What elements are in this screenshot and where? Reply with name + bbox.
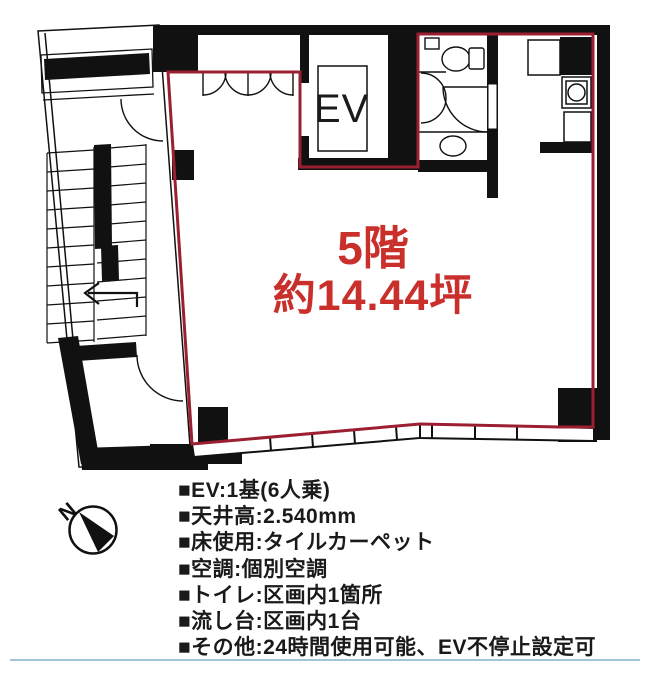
tsubo-label: 約14.44坪 xyxy=(273,272,474,320)
toilet-tank xyxy=(469,48,484,69)
toilet-room xyxy=(418,38,497,156)
entrance-doors xyxy=(203,72,293,96)
spec-item-other: ■その他:24時間使用可能、EV不停止設定可 xyxy=(178,635,618,661)
stairs-up-arrow xyxy=(85,283,137,307)
spec-item-floor: ■床使用:タイルカーペット xyxy=(178,530,618,556)
toilet-door-jamb xyxy=(488,84,497,129)
entrance-alcove xyxy=(198,35,300,68)
spec-item-sink: ■流し台:区画内1台 xyxy=(178,609,618,635)
spec-item-ceiling: ■天井高:2.540mm xyxy=(178,504,618,530)
spec-list: ■EV:1基(6人乗) ■天井高:2.540mm ■床使用:タイルカーペット ■… xyxy=(178,478,618,661)
window-band xyxy=(192,424,594,457)
wash-basin xyxy=(440,136,466,156)
spec-item-aircon: ■空調:個別空調 xyxy=(178,557,618,583)
spec-item-toilet: ■トイレ:区画内1箇所 xyxy=(178,583,618,609)
floorplan-page: EV xyxy=(0,0,650,690)
floor-label: 5階 xyxy=(337,222,409,274)
area-label: 5階 約14.44坪 xyxy=(273,222,474,320)
bottom-divider-line xyxy=(10,659,640,661)
elevator: EV xyxy=(301,66,369,151)
compass-icon: N xyxy=(55,498,117,553)
elevator-door xyxy=(301,83,309,136)
north-letter: N xyxy=(55,498,81,525)
spec-item-ev: ■EV:1基(6人乗) xyxy=(178,478,618,504)
toilet-bowl xyxy=(442,47,470,71)
ev-label: EV xyxy=(314,87,369,131)
